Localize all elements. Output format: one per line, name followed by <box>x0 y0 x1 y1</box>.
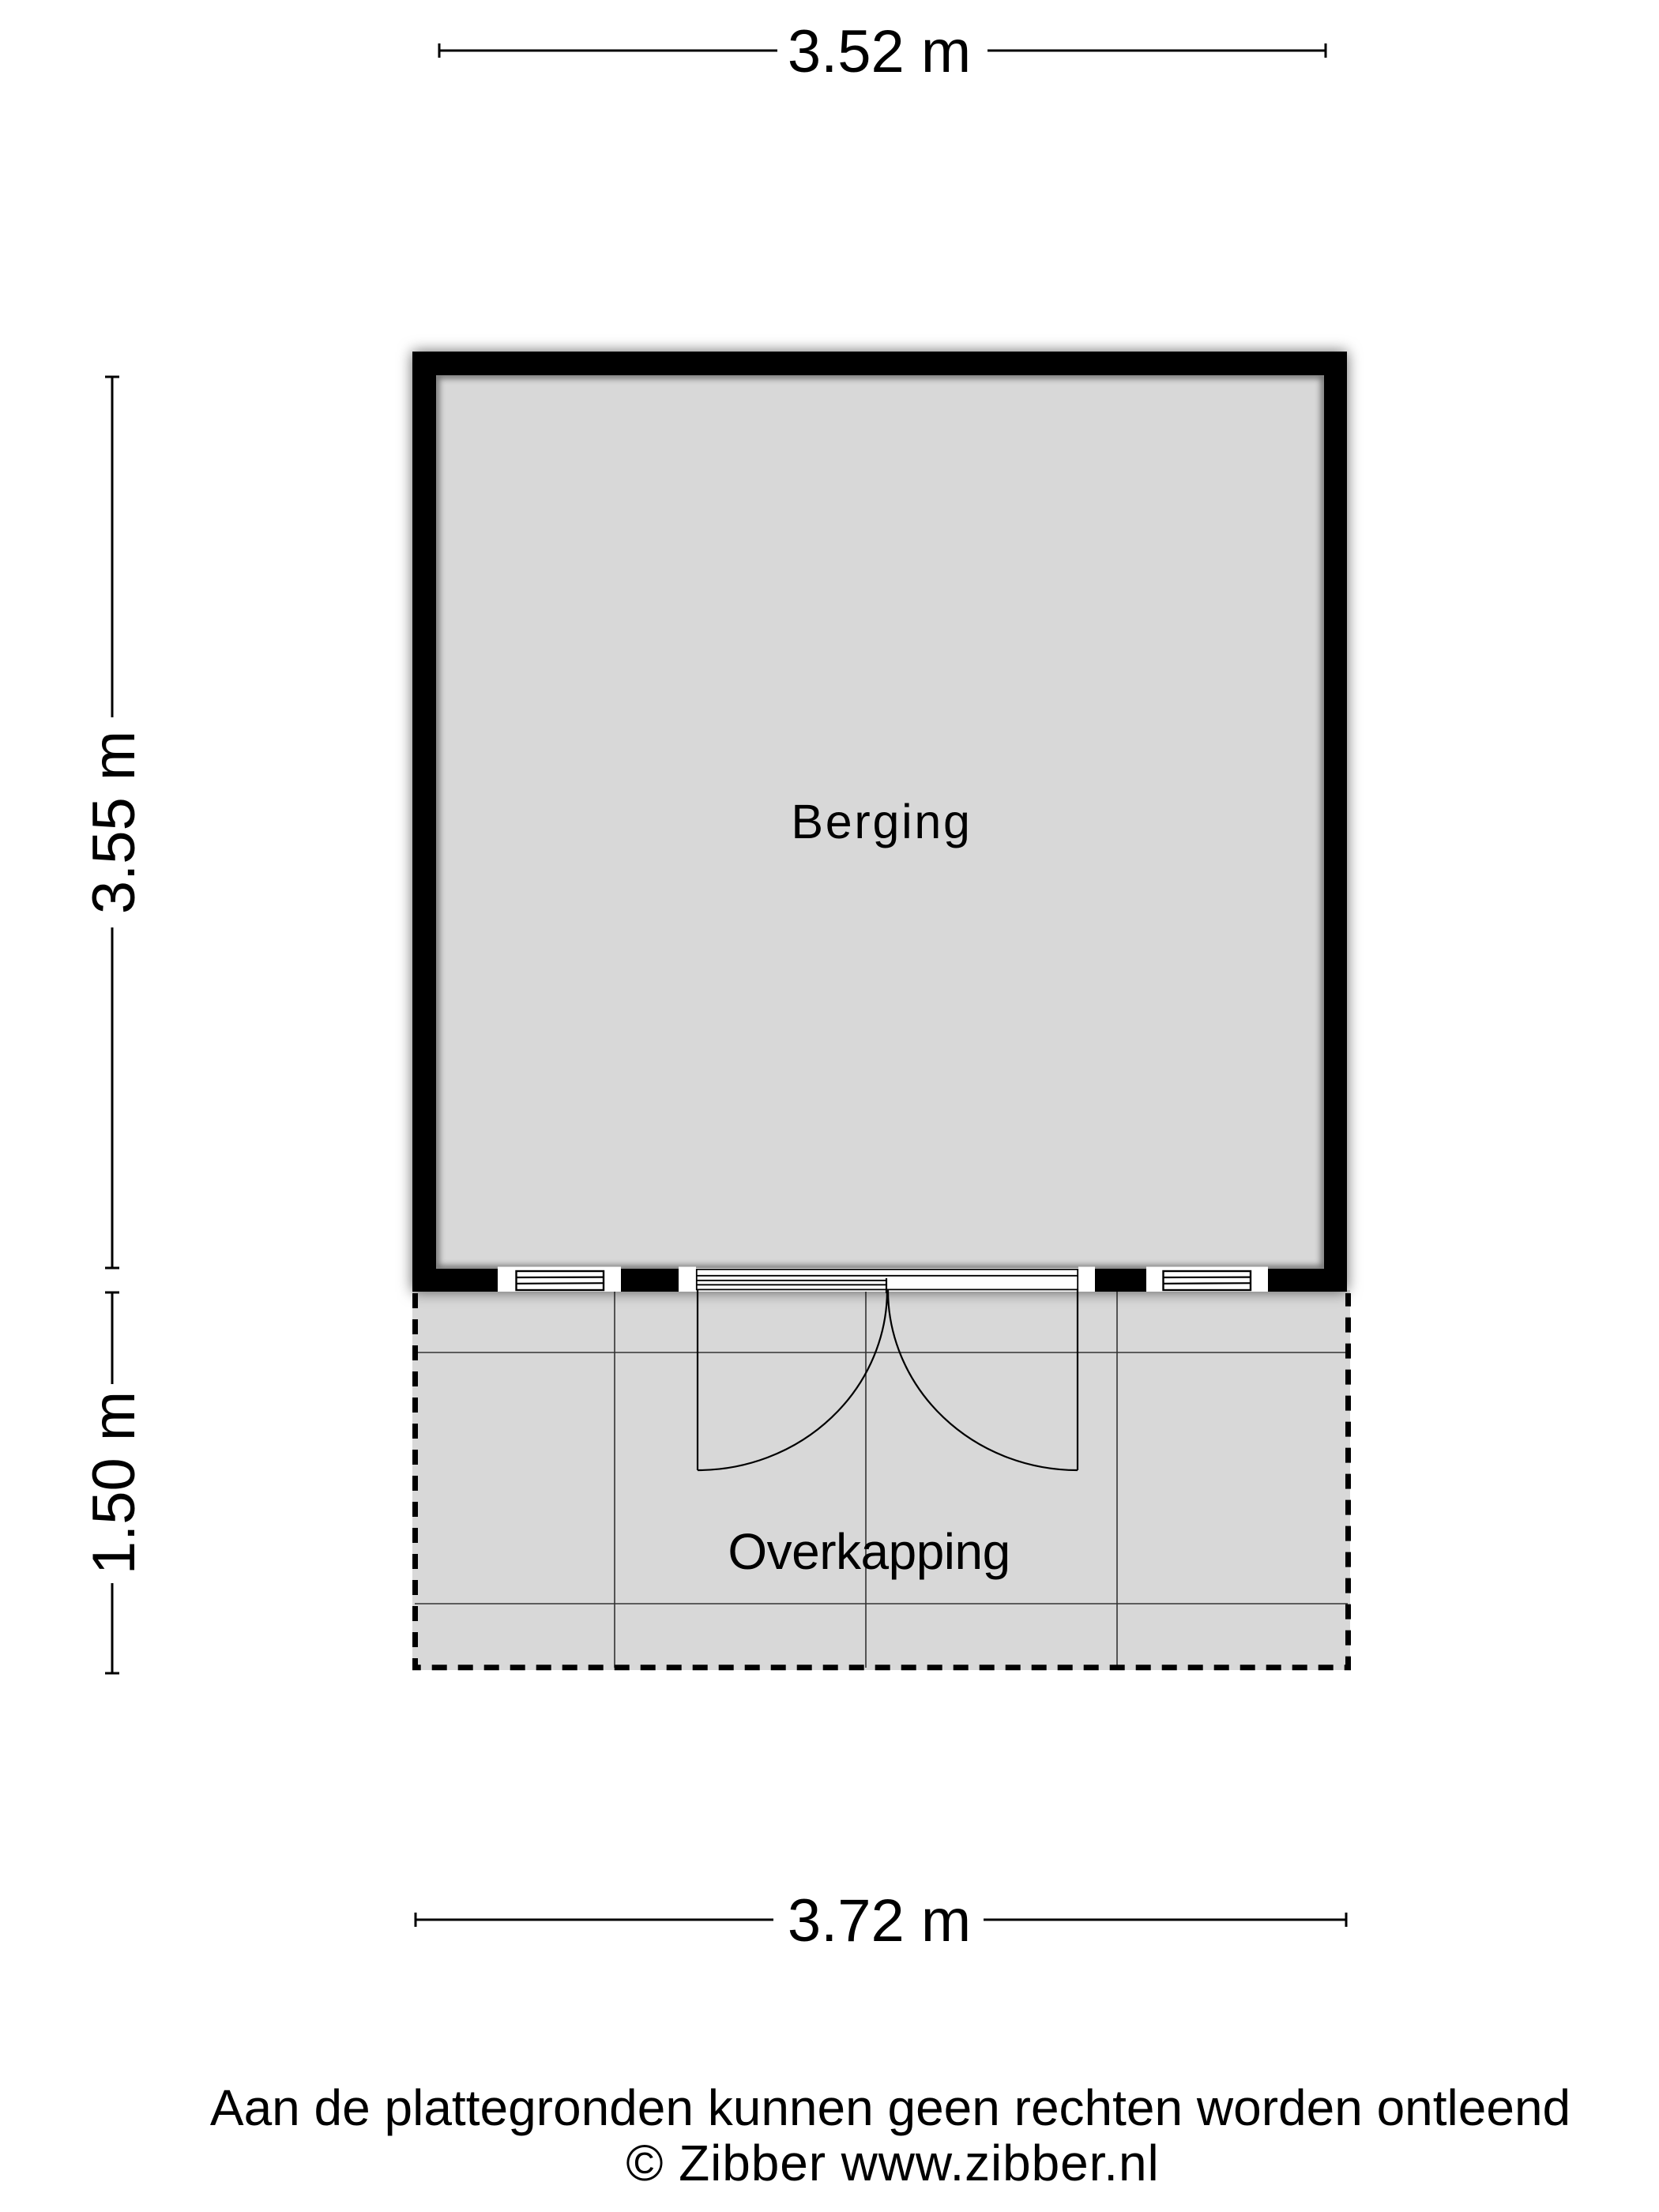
svg-text:3.52 m: 3.52 m <box>788 18 971 85</box>
svg-text:Berging: Berging <box>791 795 972 848</box>
svg-text:Aan de plattegronden kunnen ge: Aan de plattegronden kunnen geen rechten… <box>210 2079 1571 2136</box>
svg-text:3.55 m: 3.55 m <box>81 731 148 914</box>
svg-text:© Zibber www.zibber.nl: © Zibber www.zibber.nl <box>626 2135 1159 2191</box>
svg-text:Overkapping: Overkapping <box>728 1523 1010 1580</box>
svg-text:3.72 m: 3.72 m <box>788 1887 971 1954</box>
svg-text:1.50 m: 1.50 m <box>81 1391 148 1574</box>
